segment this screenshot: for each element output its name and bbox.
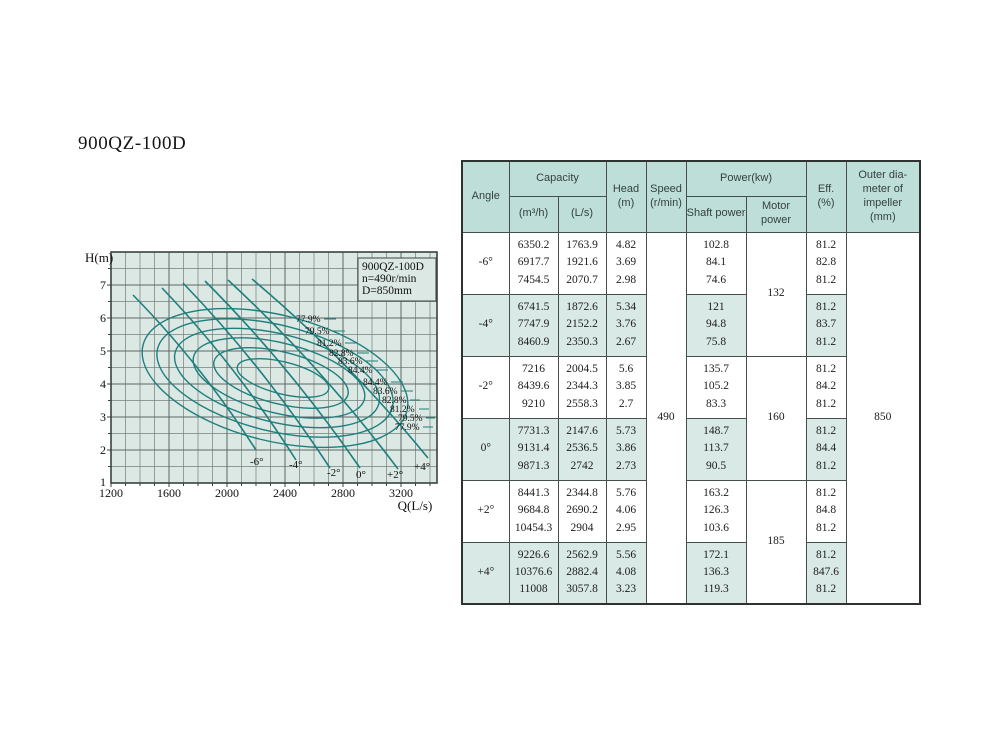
col-header-speed: Speed (r/min) <box>646 161 686 232</box>
speed-value: 490 <box>646 232 686 604</box>
cell-efficiency: 81.2 847.6 81.2 <box>806 542 846 604</box>
cell-head: 4.82 3.69 2.98 <box>606 232 646 294</box>
cell-capacity-m3h: 6741.5 7747.9 8460.9 <box>509 294 558 356</box>
angle-label: -6° <box>250 456 264 468</box>
col-header-ls: (L/s) <box>558 196 606 232</box>
cell-capacity-ls: 2344.8 2690.2 2904 <box>558 480 606 542</box>
efficiency-label: 77.9% <box>395 423 420 433</box>
y-tick-label: 3 <box>100 410 106 424</box>
angle-label: -4° <box>289 459 303 471</box>
y-tick-labels: 7 6 5 4 3 2 1 <box>100 278 106 489</box>
legend-diameter: D=850mm <box>362 285 412 297</box>
x-tick-label: 2400 <box>273 486 297 500</box>
cell-capacity-m3h: 6350.2 6917.7 7454.5 <box>509 232 558 294</box>
cell-capacity-m3h: 8441.3 9684.8 10454.3 <box>509 480 558 542</box>
x-tick-label: 2800 <box>331 486 355 500</box>
motor-power-value: 132 <box>746 232 806 356</box>
cell-efficiency: 81.2 84.4 81.2 <box>806 418 846 480</box>
cell-angle: 0° <box>462 418 509 480</box>
cell-shaft-power: 163.2 126.3 103.6 <box>686 480 746 542</box>
legend-model: 900QZ-100D <box>362 261 424 273</box>
cell-angle: +4° <box>462 542 509 604</box>
col-header-angle: Angle <box>462 161 509 232</box>
pump-data-table: Angle Capacity Head (m) Speed (r/min) Po… <box>461 160 921 605</box>
angle-label: +2° <box>387 469 403 481</box>
cell-capacity-m3h: 9226.6 10376.6 11008 <box>509 542 558 604</box>
col-header-head: Head (m) <box>606 161 646 232</box>
col-header-m3h: (m³/h) <box>509 196 558 232</box>
cell-angle: -6° <box>462 232 509 294</box>
col-header-motor-power: Motor power <box>746 196 806 232</box>
x-tick-label: 1200 <box>99 486 123 500</box>
y-tick-label: 7 <box>100 278 106 292</box>
efficiency-label: 79.5% <box>305 327 330 337</box>
col-header-power: Power(kw) <box>686 161 806 196</box>
performance-chart: 900QZ-100D n=490r/min D=850mm H(m) Q(L/s… <box>84 245 454 515</box>
cell-efficiency: 81.2 84.8 81.2 <box>806 480 846 542</box>
y-tick-label: 6 <box>100 311 106 325</box>
cell-angle: -4° <box>462 294 509 356</box>
cell-angle: +2° <box>462 480 509 542</box>
motor-power-value: 160 <box>746 356 806 480</box>
cell-capacity-ls: 1872.6 2152.2 2350.3 <box>558 294 606 356</box>
y-tick-label: 2 <box>100 443 106 457</box>
efficiency-label: 84.4% <box>348 366 373 376</box>
table-row-minus6: -6° 6350.2 6917.7 7454.5 1763.9 1921.6 2… <box>462 232 920 294</box>
x-tick-label: 2000 <box>215 486 239 500</box>
outer-diameter-value: 850 <box>846 232 920 604</box>
col-header-outer-diameter: Outer dia- meter of impeller (mm) <box>846 161 920 232</box>
efficiency-label: 81.2% <box>317 339 342 349</box>
x-tick-label: 3200 <box>389 486 413 500</box>
cell-shaft-power: 121 94.8 75.8 <box>686 294 746 356</box>
cell-efficiency: 81.2 82.8 81.2 <box>806 232 846 294</box>
y-tick-label: 5 <box>100 344 106 358</box>
cell-capacity-m3h: 7731.3 9131.4 9871.3 <box>509 418 558 480</box>
cell-head: 5.34 3.76 2.67 <box>606 294 646 356</box>
cell-shaft-power: 148.7 113.7 90.5 <box>686 418 746 480</box>
angle-label: 0° <box>356 469 366 481</box>
chart-legend: 900QZ-100D n=490r/min D=850mm <box>358 258 436 301</box>
col-header-capacity: Capacity <box>509 161 606 196</box>
cell-head: 5.76 4.06 2.95 <box>606 480 646 542</box>
y-axis-label: H(m) <box>85 250 113 265</box>
cell-capacity-ls: 1763.9 1921.6 2070.7 <box>558 232 606 294</box>
cell-shaft-power: 135.7 105.2 83.3 <box>686 356 746 418</box>
cell-head: 5.56 4.08 3.23 <box>606 542 646 604</box>
cell-capacity-ls: 2562.9 2882.4 3057.8 <box>558 542 606 604</box>
page-title: 900QZ-100D <box>78 133 186 155</box>
cell-capacity-ls: 2147.6 2536.5 2742 <box>558 418 606 480</box>
col-header-shaft-power: Shaft power <box>686 196 746 232</box>
angle-label: -2° <box>327 467 341 479</box>
col-header-eff: Eff. (%) <box>806 161 846 232</box>
cell-efficiency: 81.2 83.7 81.2 <box>806 294 846 356</box>
x-axis-label: Q(L/s) <box>398 498 433 513</box>
x-tick-label: 1600 <box>157 486 181 500</box>
x-tick-labels: 1200 1600 2000 2400 2800 3200 <box>99 486 413 500</box>
motor-power-value: 185 <box>746 480 806 604</box>
cell-shaft-power: 102.8 84.1 74.6 <box>686 232 746 294</box>
cell-efficiency: 81.2 84.2 81.2 <box>806 356 846 418</box>
cell-shaft-power: 172.1 136.3 119.3 <box>686 542 746 604</box>
cell-head: 5.73 3.86 2.73 <box>606 418 646 480</box>
cell-head: 5.6 3.85 2.7 <box>606 356 646 418</box>
y-tick-label: 4 <box>100 377 106 391</box>
efficiency-label: 77.9% <box>296 315 321 325</box>
cell-capacity-ls: 2004.5 2344.3 2558.3 <box>558 356 606 418</box>
angle-label: +4° <box>414 461 430 473</box>
legend-speed: n=490r/min <box>362 273 417 285</box>
cell-capacity-m3h: 7216 8439.6 9210 <box>509 356 558 418</box>
cell-angle: -2° <box>462 356 509 418</box>
